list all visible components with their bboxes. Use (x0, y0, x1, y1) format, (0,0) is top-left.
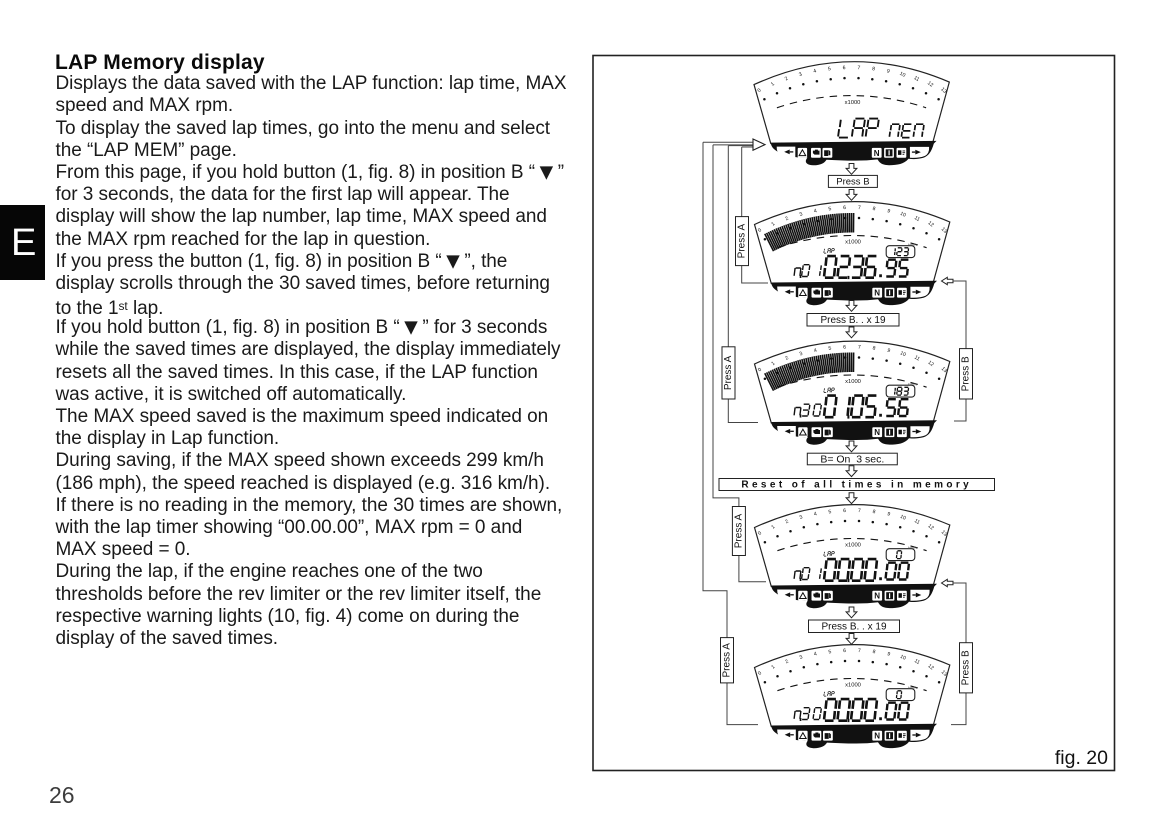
svg-text:N: N (874, 289, 880, 298)
svg-text:B= On 3 sec.: B= On 3 sec. (820, 454, 884, 466)
svg-text:N: N (874, 732, 880, 741)
svg-text:km/h: km/h (908, 242, 917, 247)
svg-text:6: 6 (843, 345, 846, 351)
svg-text:x1000: x1000 (845, 240, 861, 246)
svg-text:x1000: x1000 (845, 379, 861, 385)
svg-text:Reset of all times in memory: Reset of all times in memory (741, 480, 972, 491)
svg-text:7: 7 (858, 205, 861, 211)
svg-text:N: N (874, 592, 880, 601)
svg-text:x1000: x1000 (845, 100, 861, 106)
svg-text:fig. 20: fig. 20 (1055, 747, 1108, 769)
svg-text:7: 7 (858, 648, 861, 654)
svg-text:km/h: km/h (908, 382, 917, 387)
svg-text:Press B: Press B (836, 176, 869, 187)
svg-text:6: 6 (843, 508, 846, 514)
svg-text:Press A: Press A (737, 224, 748, 259)
svg-text:Press A: Press A (723, 355, 734, 390)
svg-text:7: 7 (857, 65, 860, 71)
svg-text:x1000: x1000 (845, 683, 861, 689)
svg-text:N: N (874, 428, 880, 437)
svg-text:N: N (874, 149, 880, 158)
svg-text:7: 7 (858, 508, 861, 514)
svg-text:Press B: Press B (961, 650, 972, 685)
svg-text:Press B: Press B (961, 356, 972, 391)
svg-text:km/h: km/h (908, 545, 917, 550)
svg-text:Press A: Press A (733, 513, 744, 548)
svg-text:Press A: Press A (722, 643, 733, 678)
svg-text:6: 6 (843, 648, 846, 654)
svg-text:Press B. . x 19: Press B. . x 19 (820, 315, 885, 326)
svg-text:7: 7 (858, 345, 861, 351)
svg-text:Press B. . x 19: Press B. . x 19 (821, 621, 886, 632)
svg-text:6: 6 (843, 65, 846, 71)
svg-text:6: 6 (843, 205, 846, 211)
svg-text:x1000: x1000 (845, 543, 861, 549)
svg-text:km/h: km/h (908, 685, 917, 690)
